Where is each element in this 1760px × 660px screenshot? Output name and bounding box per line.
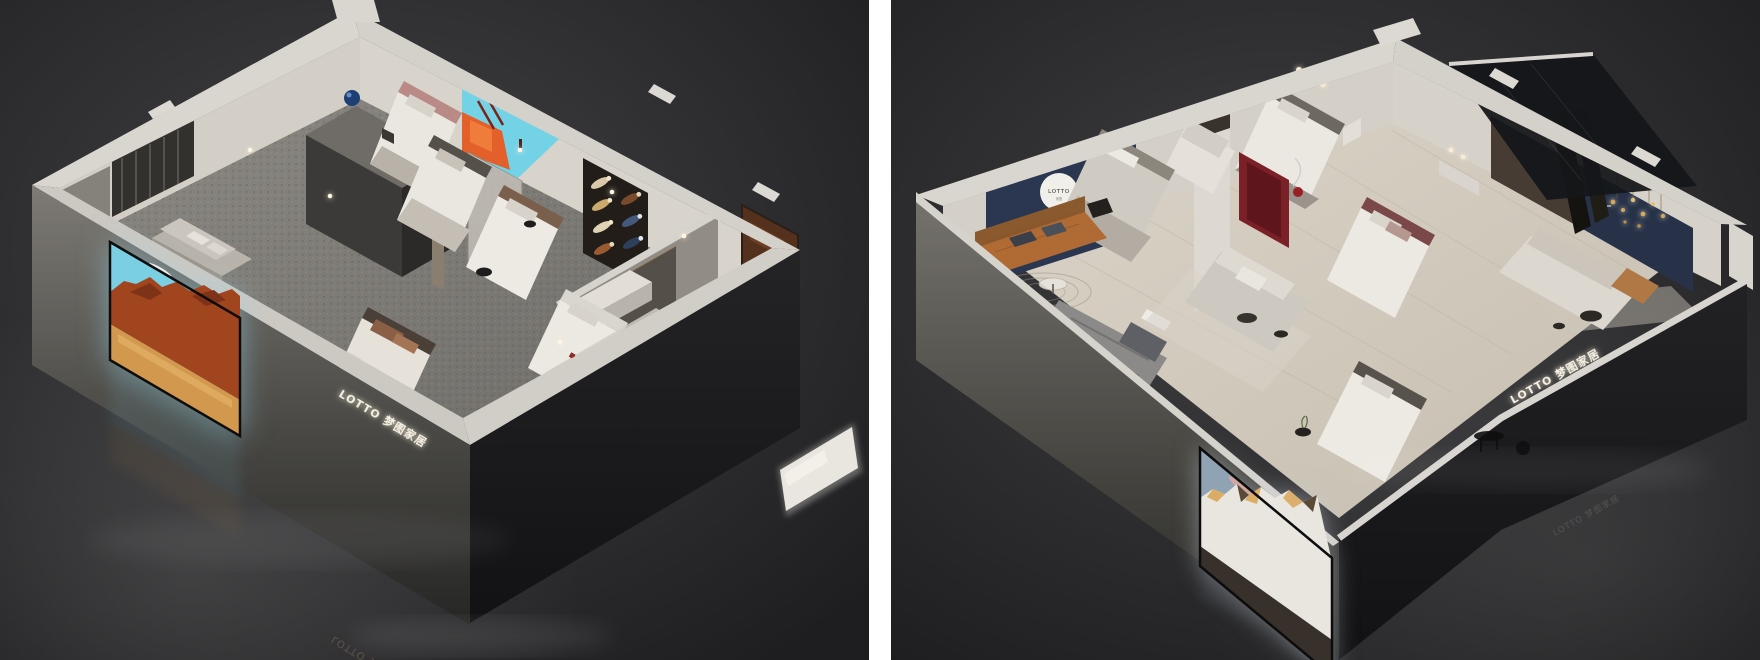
- mural-figure: [519, 139, 522, 148]
- round-side-table: [524, 221, 536, 228]
- coffee-table: [1274, 330, 1288, 337]
- panel-divider: [869, 0, 891, 660]
- round-side-table: [476, 268, 492, 277]
- dark-table: [1580, 311, 1602, 322]
- coffee-table: [1237, 313, 1257, 323]
- right-showroom-render: LOTTO 家居: [891, 0, 1760, 660]
- chimney-notch: [332, 0, 380, 22]
- svg-text:LOTTO: LOTTO: [1048, 189, 1070, 195]
- left-showroom-svg: LOTTO 梦图家居 LOTTO 梦图家居: [0, 0, 869, 660]
- svg-text:家居: 家居: [1056, 196, 1062, 201]
- dark-table: [1553, 323, 1565, 329]
- black-side-table: [1295, 428, 1311, 437]
- two-showroom-renders: LOTTO 梦图家居 LOTTO 梦图家居: [0, 0, 1760, 660]
- left-showroom-render: LOTTO 梦图家居 LOTTO 梦图家居: [0, 0, 869, 660]
- blue-sphere-decor: [344, 90, 360, 106]
- red-ball-lamp: [1293, 187, 1303, 197]
- right-showroom-svg: LOTTO 家居: [891, 0, 1760, 660]
